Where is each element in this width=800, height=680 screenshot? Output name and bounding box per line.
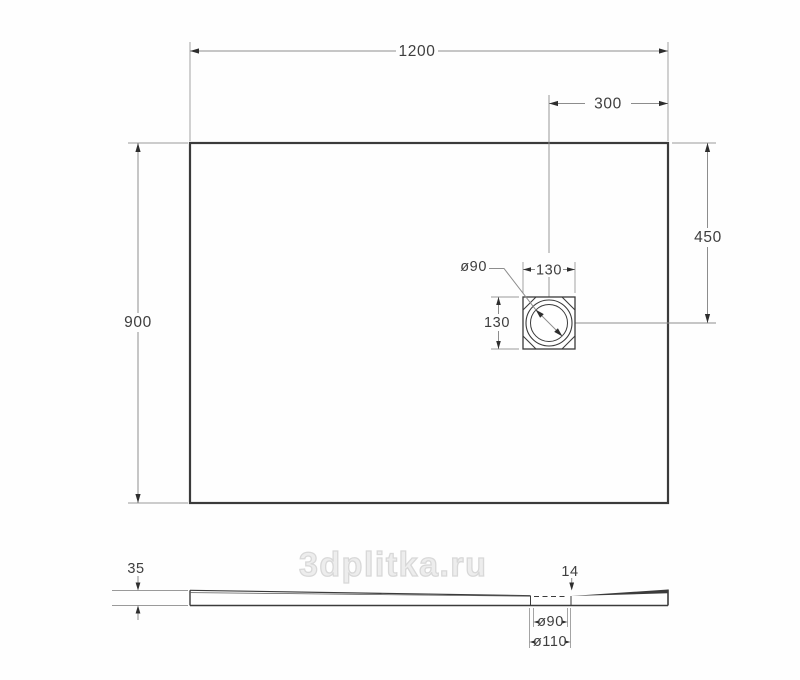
dim-label-hole-diameter: ø90	[537, 614, 564, 630]
dim-label-drain-diameter: ø90	[460, 259, 487, 275]
drawing-canvas: 1200 300 450 900 130	[0, 0, 800, 680]
arrow-down	[136, 583, 141, 591]
arrow-right	[567, 267, 575, 272]
dim-label-drain-from-top: 450	[694, 229, 722, 246]
arrow-up	[496, 297, 501, 305]
arrow-up	[705, 143, 710, 152]
dim-width-1200: 1200	[190, 42, 668, 141]
arrow-left	[190, 48, 199, 53]
dim-label-depth: 900	[124, 314, 152, 331]
side-view	[190, 590, 668, 606]
dim-label-thickness: 35	[127, 561, 144, 577]
dim-hole-diameter-o90: ø90	[534, 608, 568, 630]
dim-drain-box-height-130: 130	[484, 297, 519, 349]
arrow-down	[135, 494, 140, 503]
arrow-up	[136, 606, 141, 614]
drain-centerlines	[549, 95, 716, 323]
dim-label-drain-from-right: 300	[594, 96, 622, 113]
profile-top-surface-right	[571, 590, 668, 597]
arrow-left	[523, 267, 531, 272]
arrow-left	[549, 101, 558, 106]
arrow-right	[659, 48, 668, 53]
dim-label-width: 1200	[399, 43, 436, 60]
dim-label-drain-box-height: 130	[484, 315, 510, 331]
arrow-down	[705, 314, 710, 323]
dim-drain-from-top-450: 450	[672, 143, 722, 323]
dim-lip-14: 14	[561, 564, 578, 591]
dim-drain-from-right-300: 300	[549, 96, 668, 113]
dim-label-flange-diameter: ø110	[533, 634, 567, 650]
dim-thickness-35: 35	[112, 561, 188, 620]
arrow-down	[569, 583, 574, 591]
dim-label-lip: 14	[561, 564, 578, 580]
watermark: 3dplitka.ru	[299, 546, 487, 585]
dim-depth-900: 900	[124, 143, 188, 503]
arrow-down	[496, 341, 501, 349]
top-view	[190, 95, 716, 503]
dim-label-drain-box-width: 130	[536, 263, 562, 279]
arrow-right	[659, 101, 668, 106]
arrow-up	[135, 143, 140, 152]
